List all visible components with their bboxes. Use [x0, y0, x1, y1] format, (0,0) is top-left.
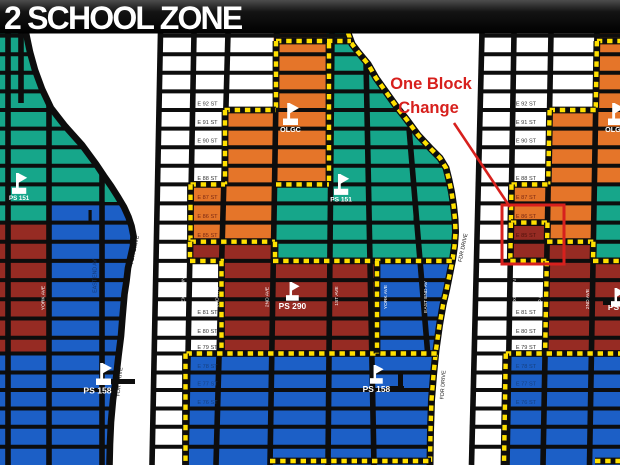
- svg-text:E 86 ST: E 86 ST: [197, 214, 218, 220]
- svg-text:2ND AVE: 2ND AVE: [585, 288, 591, 309]
- svg-text:EAST END AV: EAST END AV: [93, 259, 99, 293]
- svg-text:E 77 ST: E 77 ST: [197, 382, 218, 388]
- svg-text:E 79 ST: E 79 ST: [516, 345, 537, 351]
- svg-text:Change: Change: [398, 99, 459, 117]
- svg-text:E 91 ST: E 91 ST: [516, 120, 537, 126]
- svg-text:3RD AVE: 3RD AVE: [215, 286, 221, 307]
- svg-text:E 87 ST: E 87 ST: [197, 195, 218, 201]
- svg-text:1ST AVE: 1ST AVE: [334, 286, 340, 306]
- svg-text:E 79 ST: E 79 ST: [197, 345, 218, 351]
- svg-text:E 90 ST: E 90 ST: [516, 139, 537, 145]
- svg-text:YORK AVE: YORK AVE: [41, 285, 47, 310]
- svg-text:3RD AVE: 3RD AVE: [537, 288, 543, 309]
- svg-text:E 80 ST: E 80 ST: [516, 329, 537, 335]
- svg-text:OLGC: OLGC: [605, 125, 620, 134]
- svg-text:2ND AVE: 2ND AVE: [265, 286, 271, 307]
- svg-text:E 85 ST: E 85 ST: [516, 233, 537, 239]
- svg-text:E 87 ST: E 87 ST: [516, 195, 537, 201]
- svg-text:E 88 ST: E 88 ST: [197, 176, 218, 182]
- svg-text:One Block: One Block: [390, 75, 472, 93]
- svg-text:OLGC: OLGC: [280, 125, 301, 134]
- svg-text:E 91 ST: E 91 ST: [197, 120, 218, 126]
- svg-text:PS 151: PS 151: [330, 197, 352, 204]
- svg-text:E 81 ST: E 81 ST: [197, 310, 218, 316]
- svg-text:E 76 ST: E 76 ST: [516, 400, 537, 406]
- svg-text:E 85 ST: E 85 ST: [197, 233, 218, 239]
- svg-text:E 88 ST: E 88 ST: [516, 176, 537, 182]
- svg-text:E 90 ST: E 90 ST: [197, 139, 218, 145]
- svg-text:EAST END AV: EAST END AV: [423, 280, 429, 312]
- svg-text:E 81 ST: E 81 ST: [516, 310, 537, 316]
- svg-text:LEXINGTON AVE: LEXINGTON AVE: [512, 268, 518, 307]
- svg-text:E 76 ST: E 76 ST: [197, 400, 218, 406]
- svg-text:PS 151: PS 151: [9, 195, 30, 202]
- svg-text:PS 158: PS 158: [83, 386, 111, 396]
- svg-text:E 80 ST: E 80 ST: [197, 329, 218, 335]
- svg-text:E 92 ST: E 92 ST: [516, 102, 537, 108]
- svg-text:PS 158: PS 158: [363, 384, 391, 394]
- svg-text:E 78 ST: E 78 ST: [197, 364, 218, 370]
- svg-text:E 92 ST: E 92 ST: [197, 102, 218, 108]
- svg-text:E 77 ST: E 77 ST: [516, 382, 537, 388]
- svg-text:YORK AVE: YORK AVE: [383, 284, 389, 309]
- svg-text:E 86 ST: E 86 ST: [516, 214, 537, 220]
- svg-text:E 78 ST: E 78 ST: [516, 364, 537, 370]
- svg-text:PS 290: PS 290: [279, 301, 307, 311]
- svg-text:2 SCHOOL ZONE: 2 SCHOOL ZONE: [4, 0, 243, 36]
- svg-text:LEXINGTON AVE: LEXINGTON AVE: [181, 266, 187, 305]
